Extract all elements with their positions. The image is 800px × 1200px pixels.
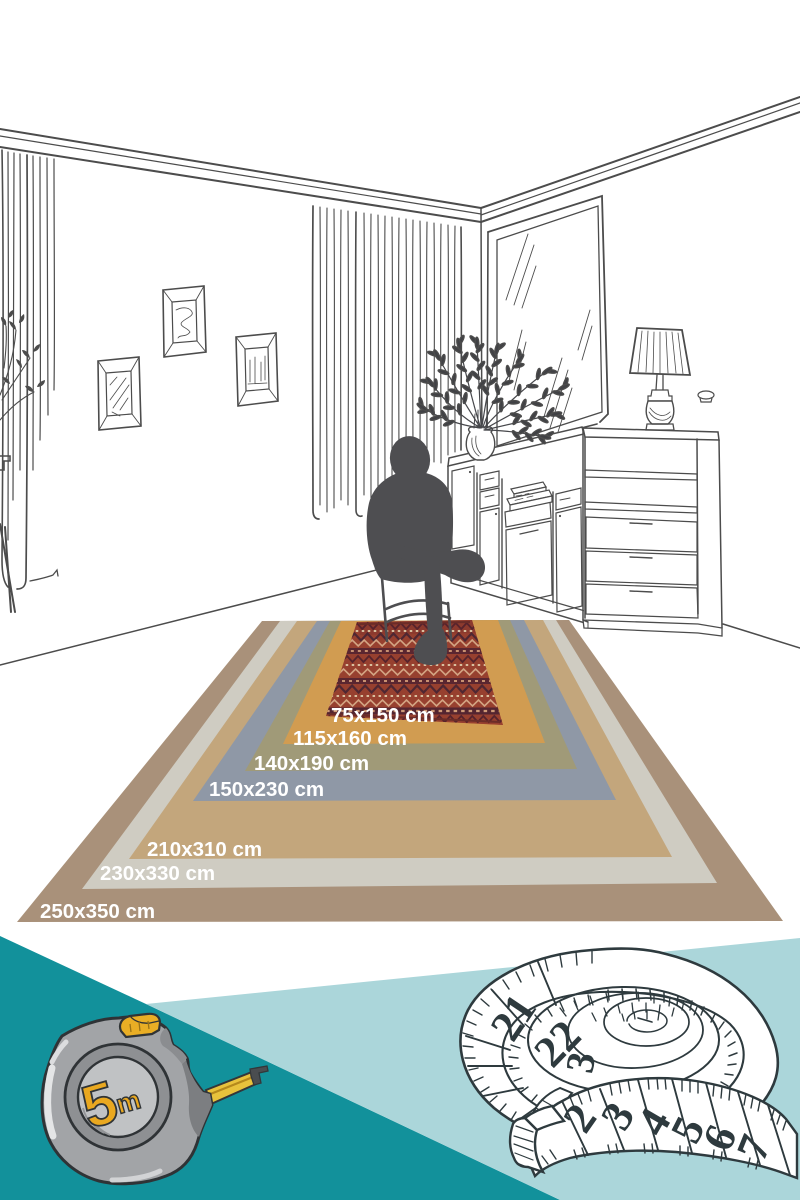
svg-text:210x310 cm: 210x310 cm — [147, 838, 262, 861]
svg-text:230x330 cm: 230x330 cm — [100, 862, 215, 885]
svg-text:140x190 cm: 140x190 cm — [254, 752, 369, 775]
svg-text:150x230 cm: 150x230 cm — [209, 778, 324, 801]
svg-text:250x350 cm: 250x350 cm — [40, 900, 155, 923]
svg-text:115x160 cm: 115x160 cm — [293, 727, 407, 750]
svg-text:75x150 cm: 75x150 cm — [331, 704, 435, 727]
